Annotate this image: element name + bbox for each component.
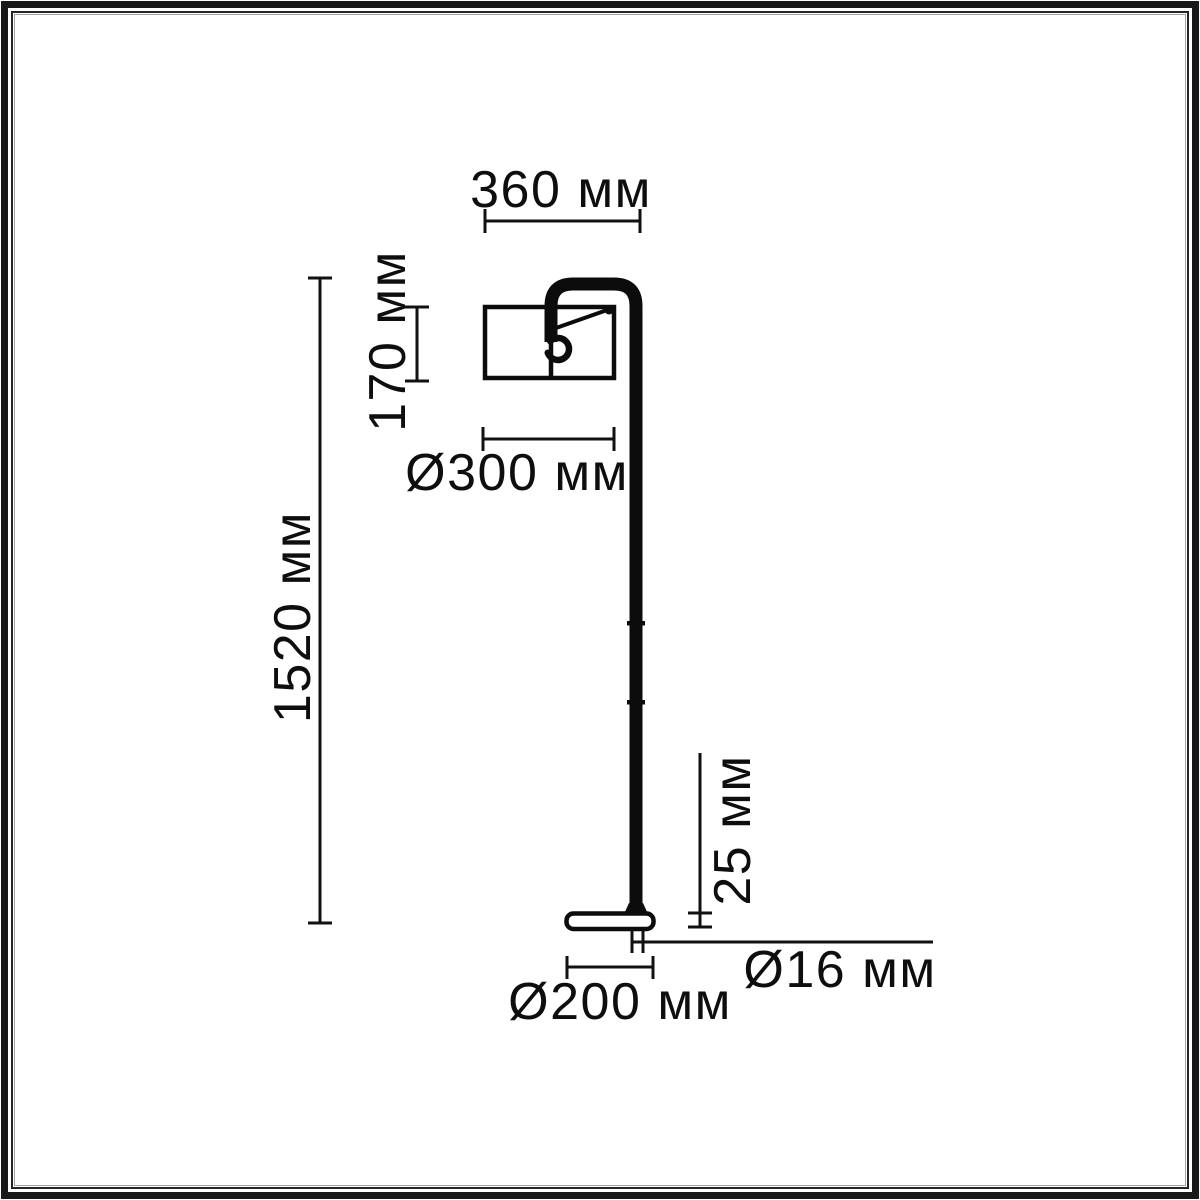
dim-pole-diameter-label: Ø16 мм	[743, 941, 936, 999]
dimension-base-height: 25 мм	[688, 753, 762, 927]
floor-lamp-dimension-diagram: 360 мм 170 мм Ø300 мм 1520 мм	[0, 0, 1200, 1200]
base-plate-outline	[567, 914, 654, 930]
lamp-drawing	[485, 284, 654, 929]
dim-total-height-label: 1520 мм	[264, 511, 322, 723]
dim-base-diameter-label: Ø200 мм	[508, 973, 732, 1031]
pole-joint-upper	[627, 621, 645, 626]
dim-shade-diameter-label: Ø300 мм	[405, 444, 629, 502]
dimension-total-height: 1520 мм	[264, 278, 332, 923]
strut-corner-node	[605, 306, 614, 315]
dimension-top-width: 360 мм	[470, 161, 652, 233]
pole-joint-lower	[627, 700, 645, 705]
dimension-annotations: 360 мм 170 мм Ø300 мм 1520 мм	[264, 161, 937, 1031]
dim-base-height-label: 25 мм	[704, 754, 762, 905]
dim-top-width-label: 360 мм	[470, 161, 652, 219]
technical-drawing-canvas: 360 мм 170 мм Ø300 мм 1520 мм	[0, 0, 1200, 1200]
dim-shade-height-label: 170 мм	[359, 250, 417, 432]
dimension-base-diameter: Ø200 мм	[508, 956, 732, 1031]
dimension-shade-diameter: Ø300 мм	[405, 427, 629, 502]
dimension-shade-height: 170 мм	[359, 250, 429, 432]
